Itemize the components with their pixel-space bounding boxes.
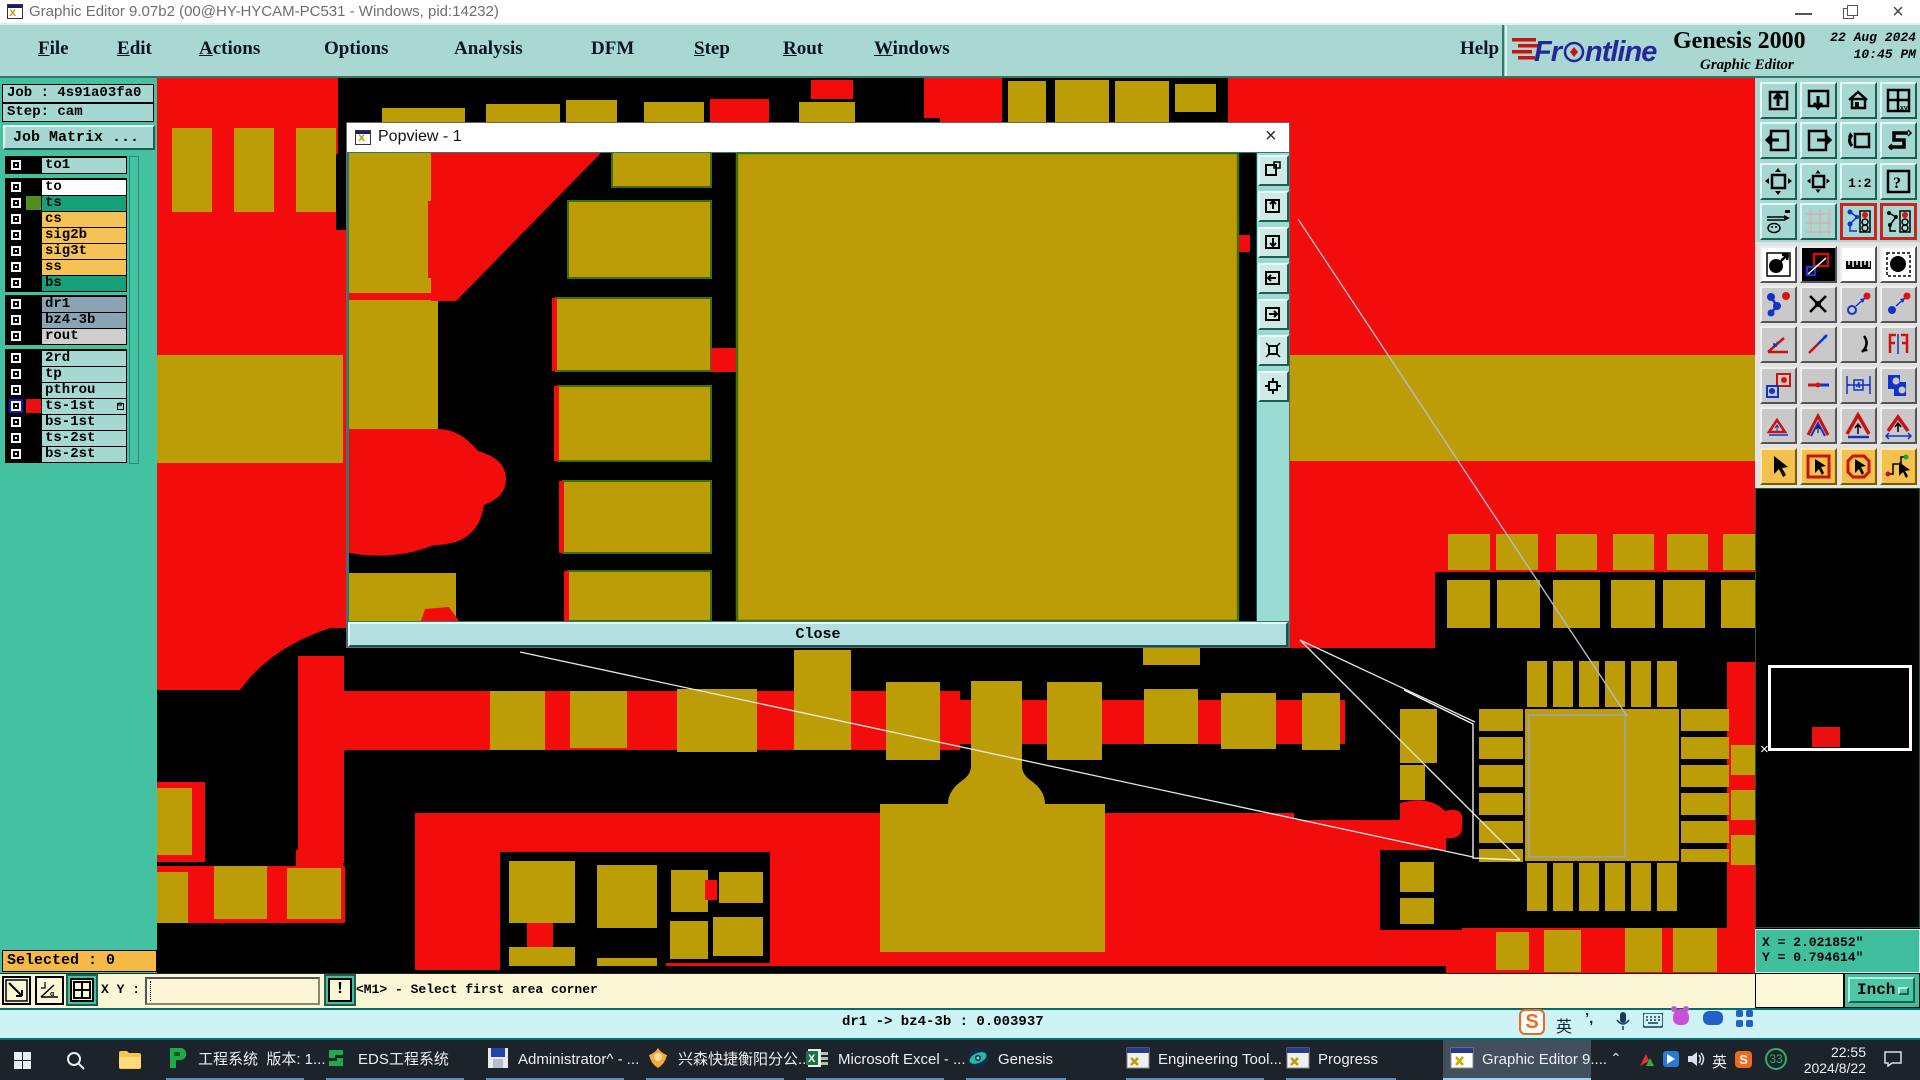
svg-text:xy: xy bbox=[1900, 105, 1908, 112]
svg-text:ntline: ntline bbox=[1585, 36, 1657, 68]
svg-text:?: ? bbox=[1893, 175, 1901, 192]
svg-text:4: 4 bbox=[1856, 381, 1861, 390]
svg-text:1:2: 1:2 bbox=[1848, 176, 1872, 191]
svg-text:Fr: Fr bbox=[1534, 36, 1564, 68]
svg-text:α: α bbox=[50, 991, 55, 998]
svg-text:X: X bbox=[808, 1053, 816, 1065]
